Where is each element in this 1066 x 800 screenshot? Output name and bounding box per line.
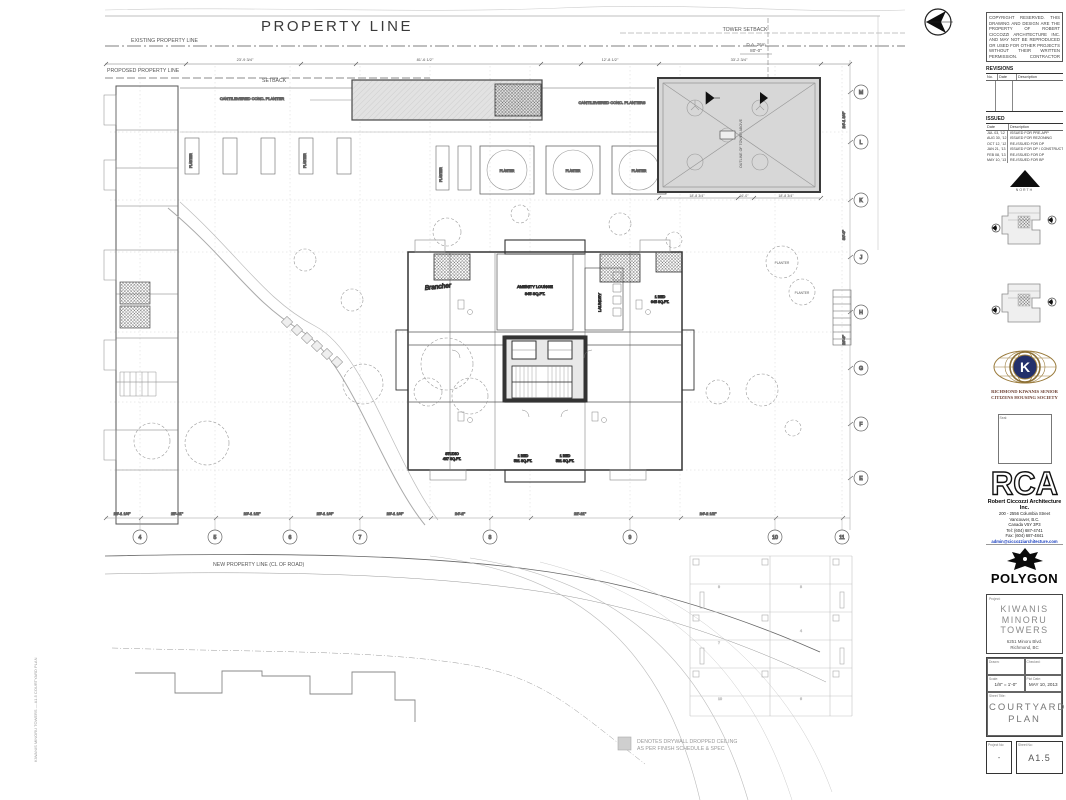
rca-logo: RCA: [986, 470, 1063, 499]
grid-number: 9: [629, 535, 632, 541]
grid-number: 11: [839, 535, 844, 541]
revisions-section: REVISIONS No. Date Description: [986, 65, 1063, 112]
revisions-title: REVISIONS: [986, 65, 1063, 74]
dim-text: 23'-9 3/4": [237, 57, 254, 62]
grid-letter: E: [859, 476, 863, 482]
titleblock: COPYRIGHT RESERVED. THIS DRAWING AND DES…: [986, 12, 1063, 792]
sheet-title-cell: Sheet Title: COURTYARD PLAN: [987, 692, 1062, 736]
polygon-wordmark: POLYGON: [986, 572, 1063, 585]
planter-row: PLANTER PLANTER CANTILEVERED CONC. PLANT…: [180, 80, 666, 194]
grid-letter: G: [859, 366, 863, 372]
grid-letter: H: [859, 310, 863, 316]
dim-text: 22'-11": [574, 511, 587, 516]
developer-block: POLYGON: [986, 544, 1063, 591]
dim-text: 24'-2": [455, 511, 466, 516]
parkade-grid-below: 9 7 10 8 4 6: [690, 556, 852, 716]
label-setback: SETBACK: [262, 78, 287, 84]
label-tower-setback: TOWER SETBACK: [723, 27, 768, 33]
dim-text: 20'-1 1/2": [244, 511, 261, 516]
label-new-property-line: NEW PROPERTY LINE (CL OF ROAD): [213, 562, 305, 568]
revisions-col-no: No.: [986, 74, 997, 80]
dim-text: 24'-2 1/2": [700, 511, 717, 516]
label-unit-area: 581 SQ.FT.: [514, 459, 532, 463]
dim-text: 12'-8 1/2": [602, 57, 619, 62]
checked-cell: Checked:: [1025, 658, 1063, 675]
dim-text: 26'-6": [841, 334, 846, 345]
label-unit: 1 BED: [655, 295, 666, 299]
drawn-cell: Drawn:: [987, 658, 1025, 675]
label-planter: PLANTER: [500, 169, 515, 173]
label-existing-property-line: EXISTING PROPERTY LINE: [131, 38, 199, 44]
dim-text: 16'-0": [739, 194, 749, 198]
label-roof-note: OUTLINE OF TOWER ABOVE: [739, 118, 743, 168]
label-tower-setback-note: D.A. 26m: [746, 42, 765, 47]
dim-text: 25'-1 1/4": [317, 511, 334, 516]
plot-date-value: MAY 10, 2013: [1027, 682, 1061, 687]
grid-letter: M: [859, 90, 863, 96]
tower-floor-plan: AMENITY LOUNGE 845 SQ.FT. LAUNDRY: [396, 240, 694, 482]
seal-label: Seal:: [1000, 416, 1008, 420]
dim-text: 24'-1 3/4": [841, 111, 846, 128]
label-unit: 1 BED: [518, 454, 529, 458]
label-planter: PLANTER: [795, 291, 810, 295]
dim-text: 18'-8 3/4": [689, 194, 705, 198]
kiwanis-globe-icon: K: [992, 348, 1058, 388]
architect-block: RCA Robert Ciccozzi Architecture Inc. 20…: [986, 470, 1063, 544]
scale-cell: Scale: 1/8" = 1'-0": [987, 675, 1025, 692]
label-planter: PLANTER: [439, 167, 443, 182]
dim-text: 18'-8 3/4": [778, 194, 794, 198]
grid-number: 8: [489, 535, 492, 541]
parkade-label: 4: [800, 629, 802, 633]
grid-number: 7: [359, 535, 362, 541]
label-unit-area: 581 SQ.FT.: [556, 459, 574, 463]
project-name-line2: TOWERS: [989, 625, 1060, 635]
label-unit-area: 645 SQ.FT.: [651, 300, 669, 304]
plot-stamp: KIWANIS MINORU TOWERS — A1.5 COURTYARD P…: [33, 657, 38, 762]
label-amenity-lounge: AMENITY LOUNGE: [517, 284, 553, 289]
scale-value: 1/8" = 1'-0": [989, 682, 1023, 687]
grid-letter: L: [860, 140, 863, 146]
label-planter: PLANTER: [303, 153, 307, 168]
top-dimension-string: 23'-9 3/4" 81'-6 1/2" 12'-8 1/2" 33'-2 3…: [104, 57, 852, 66]
dim-text: 33'-2 3/4": [731, 57, 748, 62]
label-unit-area: 437 SQ.FT.: [443, 457, 461, 461]
project-box: Project: KIWANIS MINORU TOWERS 6251 Mino…: [986, 594, 1063, 654]
grid-number: 4: [139, 535, 142, 541]
label-planter: PLANTER: [632, 169, 647, 173]
issued-col-desc: Description: [1008, 124, 1063, 130]
legend-text-line1: DENOTES DRYWALL DROPPED CEILING: [637, 739, 737, 745]
sheet-title: COURTYARD PLAN: [989, 702, 1060, 726]
road-lines: NEW PROPERTY LINE (CL OF ROAD): [105, 555, 832, 800]
project-number-value: -: [988, 755, 1010, 762]
parkade-label: 10: [718, 697, 722, 701]
site-plan-drawing: PROPERTY LINE EXISTING PROPERTY LINE PRO…: [0, 0, 985, 800]
label-unit: 1 BED: [560, 454, 571, 458]
north-caption: NORTH: [1016, 188, 1033, 192]
sheet-number-box: Sheet No: A1.5: [1016, 741, 1063, 774]
grid-number: 6: [289, 535, 292, 541]
kiwanis-caption-line2: CITIZENS HOUSING SOCIETY: [986, 395, 1063, 401]
revisions-body-empty: [986, 81, 1063, 112]
grid-number: 10: [772, 535, 778, 541]
dim-text: 23'-1 1/4": [114, 511, 131, 516]
seal-section: Seal:: [986, 412, 1063, 470]
label-unit: STUDIO: [445, 452, 459, 456]
grid-number: 5: [214, 535, 217, 541]
label-planter: PLANTER: [566, 169, 581, 173]
bottom-dimension-string: 23'-1 1/4" 25'-11" 20'-1 1/2" 25'-1 1/4"…: [104, 511, 850, 544]
left-existing-building: [104, 86, 178, 524]
revisions-col-desc: Description: [1016, 74, 1063, 80]
label-proposed-property-line: PROPOSED PROPERTY LINE: [107, 68, 180, 74]
issued-col-date: Date: [986, 124, 1008, 130]
key-plan-diagrams: [986, 198, 1063, 348]
issued-title: ISSUED: [986, 115, 1063, 124]
north-arrow-icon: [925, 9, 953, 35]
grid-letter: K: [859, 198, 863, 204]
label-planter: PLANTER: [189, 153, 193, 168]
grid-letter: F: [859, 422, 862, 428]
parkade-label: 7: [718, 641, 720, 645]
meta-grid: Drawn: Checked: Scale: 1/8" = 1'-0" Plot…: [986, 657, 1063, 737]
legend-text-line2: AS PER FINISH SCHEDULE & SPEC: [637, 746, 725, 752]
label-planter: PLANTER: [775, 261, 790, 265]
label-laundry: LAUNDRY: [597, 293, 602, 312]
label-amenity-area: 845 SQ.FT.: [525, 291, 545, 296]
architect-email[interactable]: admin@ciccozziarchitecture.com: [986, 539, 1063, 544]
dim-text: 23'-1 1/4": [387, 511, 404, 516]
seal-box: Seal:: [998, 414, 1052, 464]
dim-text: 30'-0": [841, 229, 846, 240]
copyright-disclaimer: COPYRIGHT RESERVED. THIS DRAWING AND DES…: [986, 12, 1063, 62]
kiwanis-logo-block: K RICHMOND KIWANIS SENIOR CITIZENS HOUSI…: [986, 348, 1063, 412]
label-property-line: PROPERTY LINE: [261, 18, 413, 35]
sheet-number-value: A1.5: [1018, 753, 1061, 763]
parkade-label: 6: [800, 697, 802, 701]
key-plans: [986, 198, 1063, 348]
dim-text: 25'-11": [171, 511, 184, 516]
dim-text: 81'-6 1/2": [417, 57, 434, 62]
grid-letter: J: [860, 255, 863, 261]
legend-note: DENOTES DRYWALL DROPPED CEILING AS PER F…: [618, 737, 737, 752]
revisions-col-date: Date: [997, 74, 1016, 80]
label-cantilevered-planters: CANTILEVERED CONC. PLANTERS: [579, 100, 646, 105]
label-tower-setback-dim: 80'-0": [750, 48, 762, 53]
issued-row: MAY 10, '13RE-ISSUED FOR BP: [986, 158, 1063, 163]
number-boxes: Project No: - Sheet No: A1.5: [986, 741, 1063, 774]
plot-date-cell: Plot Date: MAY 10, 2013: [1025, 675, 1063, 692]
project-name-line1: KIWANIS MINORU: [989, 604, 1060, 625]
project-address-line2: Richmond, BC: [989, 645, 1060, 651]
project-number-box: Project No: -: [986, 741, 1012, 774]
issued-section: ISSUED Date Description JUL 03, '12ISSUE…: [986, 115, 1063, 163]
project-label: Project:: [989, 597, 1060, 601]
parkade-label: 8: [800, 585, 802, 589]
drawing-sheet: PROPERTY LINE EXISTING PROPERTY LINE PRO…: [0, 0, 1066, 800]
polygon-emblem-icon: [1005, 547, 1045, 571]
parkade-label: 9: [718, 585, 720, 589]
kiwanis-k-letter: K: [1019, 359, 1029, 375]
label-cantilevered-planter: CANTILEVERED CONC. PLANTER: [220, 96, 284, 101]
roof-shaded-area: OUTLINE OF TOWER ABOVE 18'-8 3/4" 16'-0"…: [657, 78, 823, 200]
north-triangle-icon: [1010, 170, 1040, 187]
north-indicator: NORTH: [986, 166, 1063, 196]
right-grid-bubbles: M L K J H G F E 24'-1 3/4" 30'-0" 26'-6": [841, 60, 868, 530]
